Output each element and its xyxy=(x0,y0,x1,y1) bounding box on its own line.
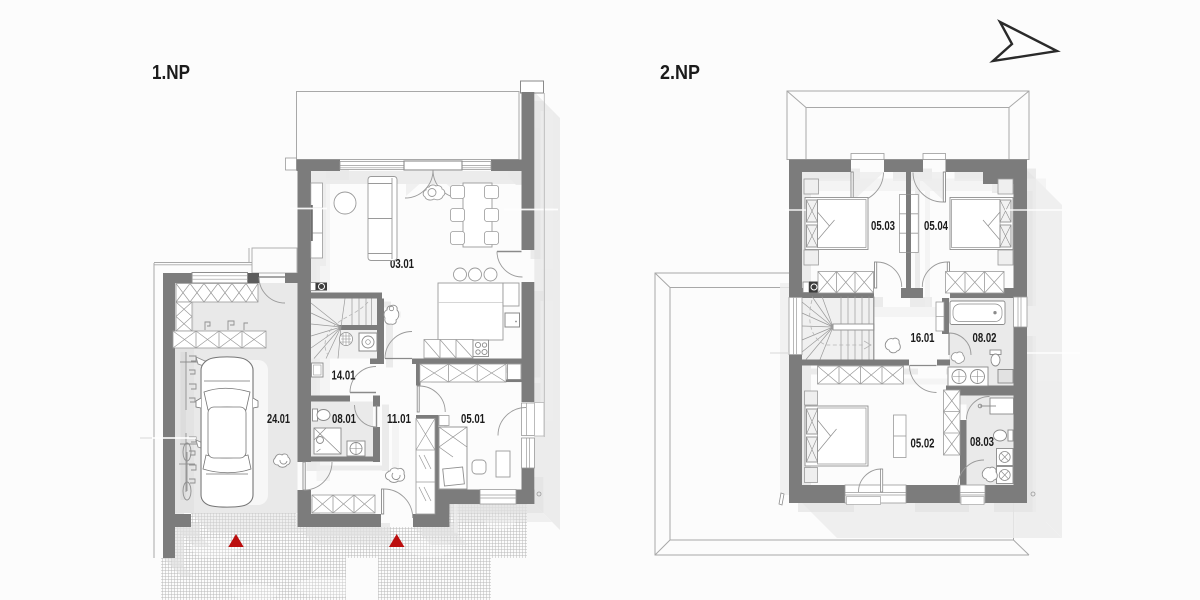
svg-text:08.01: 08.01 xyxy=(332,411,356,426)
svg-text:14.01: 14.01 xyxy=(332,368,356,383)
svg-text:08.03: 08.03 xyxy=(970,434,994,449)
svg-text:05.02: 05.02 xyxy=(911,436,935,451)
svg-text:16.01: 16.01 xyxy=(911,330,935,345)
svg-text:2.NP: 2.NP xyxy=(660,62,700,84)
svg-text:05.04: 05.04 xyxy=(924,218,949,233)
svg-text:24.01: 24.01 xyxy=(267,411,290,426)
svg-text:05.01: 05.01 xyxy=(461,411,485,426)
svg-text:1.NP: 1.NP xyxy=(152,62,190,84)
svg-text:08.02: 08.02 xyxy=(973,330,997,345)
svg-text:11.01: 11.01 xyxy=(387,411,411,426)
svg-text:05.03: 05.03 xyxy=(871,218,895,233)
